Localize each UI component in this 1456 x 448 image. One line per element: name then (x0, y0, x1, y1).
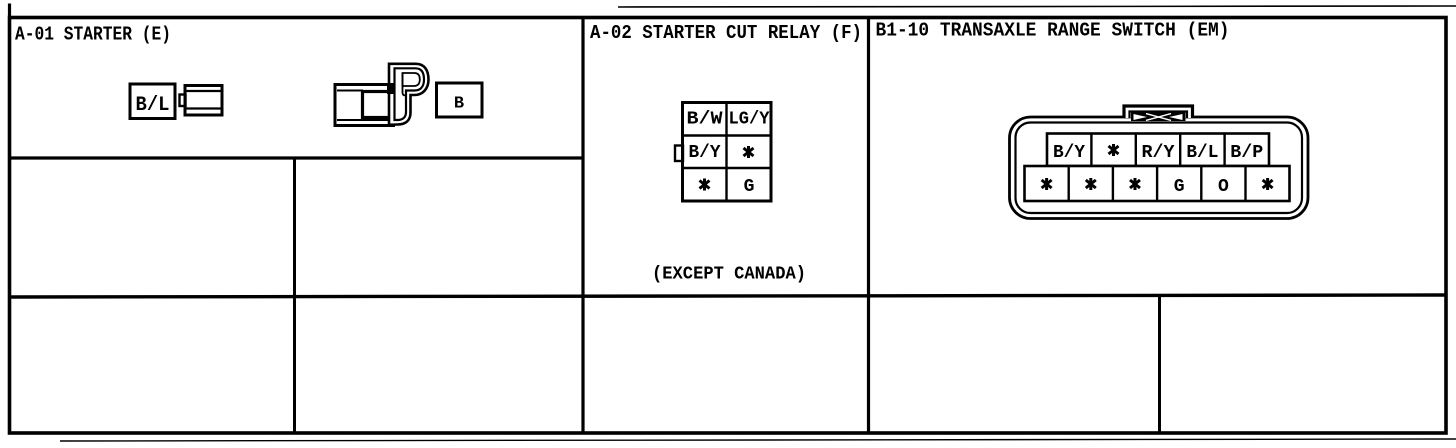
svg-text:A-01 STARTER (E): A-01 STARTER (E) (15, 24, 171, 46)
svg-text:A-02 STARTER CUT RELAY (F): A-02 STARTER CUT RELAY (F) (590, 22, 862, 44)
svg-text:R/Y: R/Y (1142, 143, 1175, 163)
svg-text:G: G (744, 177, 755, 197)
svg-text:LG/Y: LG/Y (729, 110, 770, 130)
svg-text:(EXCEPT CANADA): (EXCEPT CANADA) (652, 265, 806, 285)
svg-text:B1-10 TRANSAXLE RANGE SWITCH (: B1-10 TRANSAXLE RANGE SWITCH (EM) (876, 20, 1230, 42)
svg-text:B/L: B/L (136, 94, 170, 117)
svg-text:B/L: B/L (1186, 143, 1218, 163)
svg-text:O: O (1218, 177, 1229, 197)
svg-text:B/Y: B/Y (689, 143, 721, 163)
svg-text:G: G (1174, 177, 1185, 197)
svg-text:B: B (454, 95, 464, 114)
svg-text:B/P: B/P (1230, 143, 1263, 163)
svg-text:B/Y: B/Y (1053, 143, 1085, 163)
svg-text:B/W: B/W (687, 110, 723, 130)
